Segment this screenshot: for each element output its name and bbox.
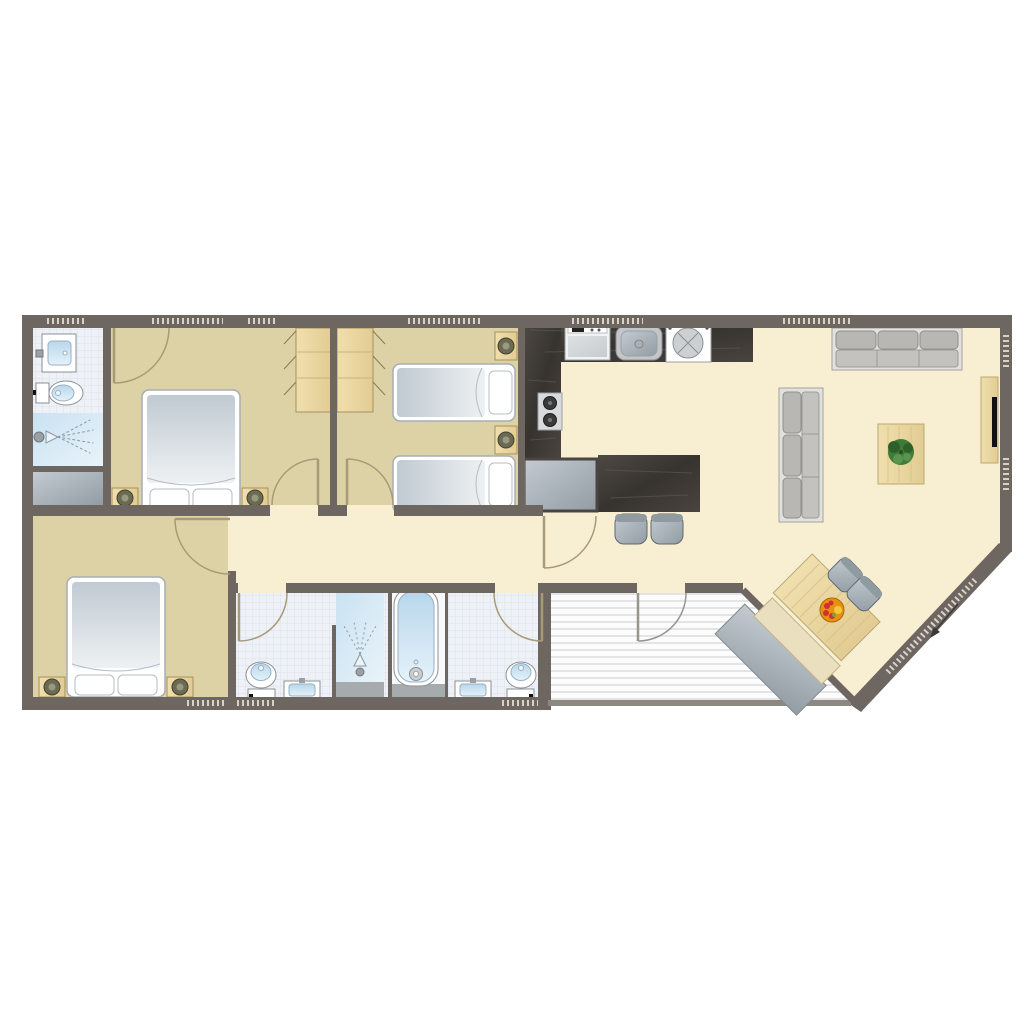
sofa-icon [832,328,962,370]
plant-icon [888,439,914,465]
wall-top [22,315,1012,328]
nightstand-icon [39,677,65,697]
wall-left [22,315,33,710]
cooktop-icon [538,393,562,430]
washing-machine-icon [666,324,711,362]
floor-plan-canvas [0,0,1024,1024]
dishwasher-icon [565,325,610,360]
coffee-table-icon [878,424,924,484]
double-bed-icon [142,390,240,512]
shower-icon [336,593,384,697]
single-bed-icon [393,456,515,513]
tv-cabinet-icon [981,377,998,463]
double-bed-icon [67,577,165,697]
wall-bottom [22,697,551,710]
tv-icon [992,397,997,447]
fridge-icon [524,459,597,511]
sofa-icon [779,388,823,522]
bar-stool-icon [615,514,647,544]
washbasin-icon [455,678,491,698]
nightstand-icon [495,332,517,360]
single-bed-icon [393,364,515,421]
fruit-bowl-icon [820,598,844,622]
bar-island [598,455,700,512]
bar-stool-icon [651,514,683,544]
washbasin-icon [36,334,76,372]
toilet-icon [31,381,83,405]
nightstand-icon [167,677,193,697]
nightstand-icon [495,426,517,454]
washbasin-icon [284,678,320,698]
storage-floor [33,472,103,505]
toilet-icon [246,662,276,699]
floor-plan [0,0,1024,1024]
toilet-icon [506,662,536,699]
